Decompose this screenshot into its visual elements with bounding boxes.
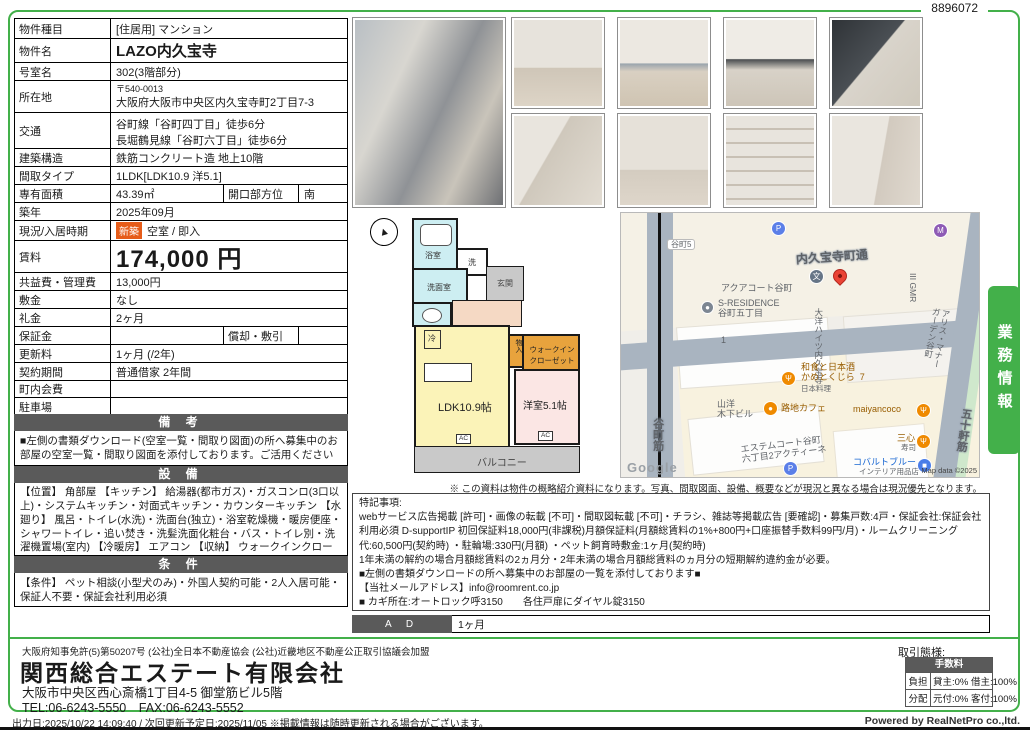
- restaurant-icon: Ψ: [916, 403, 931, 418]
- table-row: 駐車場: [15, 398, 347, 415]
- floorplan: ▲ 浴室 洗 洗面室 玄関 冷 LDK10.9帖 AC 物入 ウォークイン クロ…: [352, 212, 616, 478]
- parking-icon: P: [783, 461, 798, 476]
- street-name-left: 谷町筋: [651, 418, 664, 451]
- station-icon: M: [933, 223, 948, 238]
- table-row: 号室名302(3階部分): [15, 63, 347, 81]
- ad-label: A D: [352, 615, 452, 633]
- property-table: 物件種目[住居用] マンション 物件名LAZO内久宝寺 号室名302(3階部分)…: [14, 18, 348, 416]
- map-label: アクアコート谷町: [721, 283, 793, 293]
- fp-entrance: 玄関: [486, 266, 524, 301]
- photo-closet-1[interactable]: [617, 113, 711, 208]
- building-marker-icon: ●: [701, 301, 714, 314]
- document-number: 8896072: [921, 1, 988, 15]
- tab-business-info[interactable]: 業務情報: [988, 286, 1020, 454]
- special-notes: 特記事項: webサービス広告掲載 [許可]・画像の転載 [不可]・間取図転載 …: [352, 493, 990, 611]
- table-row: 所在地 〒540-0013大阪府大阪市中央区内久宝寺町2丁目7-3: [15, 81, 347, 113]
- table-row: 間取タイプ1LDK[LDK10.9 洋5.1]: [15, 167, 347, 185]
- poi-sub-label: 日本料理: [801, 385, 831, 394]
- parking-icon: P: [771, 221, 786, 236]
- table-row: 更新料1ヶ月 (/2年): [15, 345, 347, 363]
- table-row: 築年2025年09月: [15, 203, 347, 221]
- table-row: 敷金なし: [15, 291, 347, 309]
- table-row: 負担貸主:0% 借主:100%: [906, 672, 992, 689]
- powered-by: Powered by RealNetPro co.,ltd.: [865, 715, 1020, 727]
- cafe-icon: ●: [763, 401, 778, 416]
- map-label: III GMR: [907, 273, 917, 302]
- photo-shelves[interactable]: [723, 113, 817, 208]
- photo-bathroom[interactable]: [829, 17, 923, 109]
- map[interactable]: 内久宝寺町通 谷町筋 五十軒筋 谷町5 P M 文 アクアコート谷町 ● S-R…: [620, 212, 980, 478]
- ad-row: A D 1ヶ月: [352, 615, 990, 633]
- table-row: 契約期間普通借家 2年間: [15, 363, 347, 381]
- table-row: 現況/入居時期 新築空室 / 即入: [15, 221, 347, 241]
- conditions-body: 【条件】 ペット相談(小型犬のみ)・外国人契約可能・2人入居可能・保証人不要・保…: [14, 573, 348, 607]
- fp-wic: ウォークイン クローゼット: [522, 334, 580, 371]
- remarks-section: 備 考 ■左側の書類ダウンロード(空室一覧・間取り図面)の所へ募集中のお部屋の空…: [14, 414, 348, 607]
- area-tag: 谷町5: [667, 239, 695, 250]
- new-build-badge: 新築: [116, 222, 142, 239]
- table-row: 賃料174,000 円: [15, 241, 347, 273]
- restaurant-icon: Ψ: [916, 434, 931, 449]
- google-logo: Google: [627, 461, 678, 476]
- map-label: S-RESIDENCE 谷町五丁目: [718, 298, 780, 319]
- rent-amount: 174,000 円: [111, 241, 347, 272]
- fp-balcony: バルコニー: [414, 446, 580, 473]
- fp-ldk: 冷 LDK10.9帖 AC: [414, 325, 510, 448]
- photo-interior-2[interactable]: [617, 17, 711, 109]
- poi-label: 和食と日本酒 かめとくじら 7: [801, 363, 865, 383]
- photo-washroom[interactable]: [511, 113, 605, 208]
- conditions-header: 条 件: [14, 556, 348, 573]
- fp-hall: [452, 300, 522, 327]
- map-attribution: Map data ©2025: [921, 467, 977, 476]
- poi-sub-label: 寿司: [901, 444, 916, 453]
- address: 大阪府大阪市中央区内久宝寺町2丁目7-3: [116, 94, 314, 110]
- table-row: 建築構造鉄筋コンクリート造 地上10階: [15, 149, 347, 167]
- compass-icon: ▲: [366, 214, 401, 249]
- company-tel-fax: TEL:06-6243-5550 FAX:06-6243-5552: [22, 697, 244, 716]
- equipment-header: 設 備: [14, 466, 348, 483]
- commission-header: 手数料: [906, 658, 992, 672]
- ad-value: 1ヶ月: [452, 615, 990, 633]
- poi-label: 路地カフェ: [781, 404, 826, 414]
- photo-building-exterior[interactable]: [352, 17, 506, 208]
- table-row: 分配元付:0% 客付:100%: [906, 689, 992, 706]
- equipment-body: 【位置】 角部屋 【キッチン】 給湯器(都市ガス)・ガスコンロ(3口以上)・シス…: [14, 483, 348, 556]
- commission-table: 手数料 負担貸主:0% 借主:100% 分配元付:0% 客付:100%: [905, 657, 993, 707]
- photo-interior-1[interactable]: [511, 17, 605, 109]
- poi-label: maiyancoco: [853, 405, 901, 415]
- table-row: 保証金 償却・敷引: [15, 327, 347, 345]
- photo-closet-2[interactable]: [829, 113, 923, 208]
- school-icon: 文: [809, 269, 824, 284]
- remarks-header: 備 考: [14, 414, 348, 431]
- fp-western-room: 洋室5.1帖 AC: [514, 369, 580, 445]
- table-row: 町内会費: [15, 381, 347, 398]
- property-sheet-page: 8896072 業務情報 物件種目[住居用] マンション 物件名LAZO内久宝寺…: [0, 0, 1030, 730]
- zip-code: 〒540-0013: [116, 84, 163, 94]
- map-label: 1: [721, 335, 726, 345]
- table-row: 物件名LAZO内久宝寺: [15, 39, 347, 63]
- fp-bathroom: 浴室: [412, 218, 458, 270]
- fp-toilet: [412, 302, 452, 327]
- map-label: 山洋 木下ビル: [717, 399, 753, 420]
- table-row: 交通 谷町線「谷町四丁目」徒歩6分長堀鶴見線「谷町六丁目」徒歩6分: [15, 113, 347, 149]
- table-row: 礼金2ヶ月: [15, 309, 347, 327]
- table-row: 共益費・管理費13,000円: [15, 273, 347, 291]
- remarks-body: ■左側の書類ダウンロード(空室一覧・間取り図面)の所へ募集中のお部屋の空室一覧・…: [14, 431, 348, 466]
- photo-kitchen[interactable]: [723, 17, 817, 109]
- property-name: LAZO内久宝寺: [111, 39, 347, 62]
- table-row: 専有面積 43.39㎡ 開口部方位 南: [15, 185, 347, 203]
- table-row: 物件種目[住居用] マンション: [15, 19, 347, 39]
- restaurant-icon: Ψ: [781, 371, 796, 386]
- section-divider: [8, 637, 1020, 639]
- poi-sub-label: インテリア用品店: [859, 468, 919, 477]
